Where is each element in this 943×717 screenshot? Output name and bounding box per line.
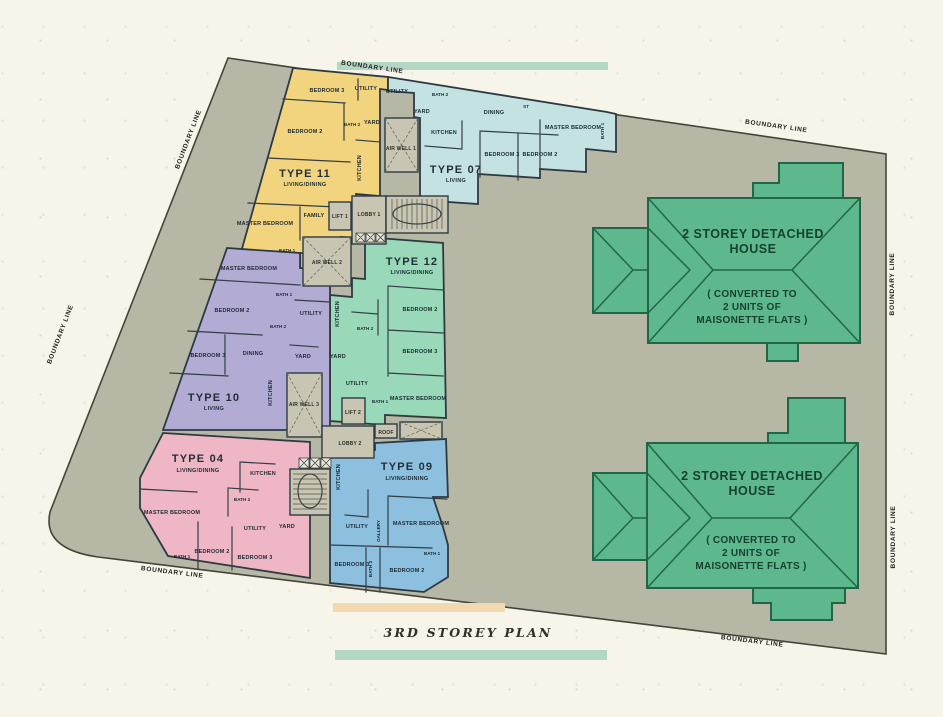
unit-sub-type07: LIVING (446, 178, 466, 184)
room-label: KITCHEN (250, 471, 276, 477)
unit-title-type09: TYPE 09 (381, 461, 433, 473)
room-label: MASTER BEDROOM (393, 521, 449, 527)
house1-name-line2: HOUSE (730, 242, 777, 256)
room-label: BEDROOM 2 (389, 568, 424, 574)
room-label: KITCHEN (357, 155, 363, 181)
lift-2-label: LIFT 2 (345, 410, 361, 416)
boundary-label: BOUNDARY LINE (889, 253, 896, 316)
unit-title-type12: TYPE 12 (386, 256, 438, 268)
room-label: MASTER BEDROOM (545, 125, 601, 131)
entry-mat-1 (356, 233, 385, 242)
room-label: BATH 1 (372, 399, 389, 404)
house1-note-line3: MAISONETTE FLATS ) (696, 315, 807, 326)
room-label: BEDROOM 2 (402, 307, 437, 313)
room-label: YARD (414, 109, 430, 115)
house2-note-line1: ( CONVERTED TO (706, 535, 796, 546)
room-label: KITCHEN (335, 301, 341, 327)
lift-1-label: LIFT 1 (332, 214, 348, 220)
room-label: BEDROOM 2 (287, 129, 322, 135)
house1-name-line1: 2 STOREY DETACHED (682, 227, 824, 241)
accent-bar-bottom (335, 650, 607, 660)
room-label: FAMILY (304, 213, 325, 219)
air-well-2-label: AIR WELL 2 (312, 260, 342, 266)
unit-sub-type11: LIVING/DINING (283, 182, 326, 188)
room-label: YARD (330, 354, 346, 360)
room-label: BATH 1 (424, 551, 441, 556)
room-label: DINING (484, 110, 504, 116)
house1-note-line1: ( CONVERTED TO (707, 289, 797, 300)
room-label: BATH 1 (279, 248, 296, 253)
house2-wing (593, 473, 647, 560)
room-label: UTILITY (355, 86, 377, 92)
roof-label: ROOF (378, 430, 393, 436)
room-label: BEDROOM 3 (334, 562, 369, 568)
room-label: BATH 2 (357, 326, 374, 331)
room-label: YARD (279, 524, 295, 530)
room-label: BEDROOM 3 (402, 349, 437, 355)
house2-note-line2: 2 UNITS OF (722, 548, 780, 559)
room-label: BEDROOM 2 (194, 549, 229, 555)
unit-sub-type12: LIVING/DINING (390, 270, 433, 276)
unit-title-type11: TYPE 11 (279, 168, 331, 180)
room-label: BEDROOM 2 (522, 152, 557, 158)
floor-plan: 2 STOREY DETACHED HOUSE ( CONVERTED TO 2… (0, 0, 943, 717)
unit-title-type10: TYPE 10 (188, 392, 240, 404)
room-label: UTILITY (300, 311, 322, 317)
room-label: DINING (243, 351, 263, 357)
lobby-1-label: LOBBY 1 (358, 212, 381, 218)
house1-note-line2: 2 UNITS OF (723, 302, 781, 313)
house2-note-line3: MAISONETTE FLATS ) (695, 561, 806, 572)
room-label: KITCHEN (336, 464, 342, 490)
room-label: MASTER BEDROOM (390, 396, 446, 402)
lobby-2-label: LOBBY 2 (339, 441, 362, 447)
room-label: BEDROOM 3 (484, 152, 519, 158)
room-label: BATH 2 (234, 497, 251, 502)
unit-sub-type10: LIVING (204, 406, 224, 412)
room-label: BATH 2 (368, 560, 373, 577)
room-label: BATH 1 (600, 122, 605, 139)
room-label: GALLERY (376, 520, 381, 542)
room-label: UTILITY (244, 526, 266, 532)
room-label: MASTER BEDROOM (221, 266, 277, 272)
room-label: BATH 1 (276, 292, 293, 297)
room-label: ST (523, 104, 529, 109)
room-label: YARD (364, 120, 380, 126)
boundary-label: BOUNDARY LINE (890, 506, 897, 569)
unit-sub-type09: LIVING/DINING (385, 476, 428, 482)
air-well-1-label: AIR WELL 1 (386, 146, 416, 152)
accent-bar-orange (333, 603, 505, 612)
entry-mat-2 (299, 458, 331, 468)
house2-name-line1: 2 STOREY DETACHED (681, 469, 823, 483)
room-label: UTILITY (386, 89, 408, 95)
house1-ext-bottom (767, 343, 798, 361)
room-label: BATH 2 (432, 92, 449, 97)
room-label: UTILITY (346, 381, 368, 387)
room-label: YARD (295, 354, 311, 360)
room-label: BATH 2 (270, 324, 287, 329)
room-label: KITCHEN (431, 130, 457, 136)
room-label: MASTER BEDROOM (144, 510, 200, 516)
air-well-3-label: AIR WELL 3 (289, 402, 319, 408)
plan-title: 3RD STOREY PLAN (384, 625, 553, 640)
house2-name-line2: HOUSE (729, 484, 776, 498)
unit-sub-type04: LIVING/DINING (176, 468, 219, 474)
room-label: BEDROOM 3 (237, 555, 272, 561)
unit-title-type04: TYPE 04 (172, 453, 224, 465)
room-label: BEDROOM 2 (214, 308, 249, 314)
room-label: BATH 2 (344, 122, 361, 127)
boundary-label: BOUNDARY LINE (46, 304, 75, 365)
room-label: BEDROOM 3 (309, 88, 344, 94)
room-label: BEDROOM 3 (190, 353, 225, 359)
room-label: UTILITY (346, 524, 368, 530)
boundary-label: BOUNDARY LINE (745, 119, 808, 135)
room-label: KITCHEN (268, 380, 274, 406)
unit-title-type07: TYPE 07 (430, 164, 482, 176)
room-label: BATH 1 (174, 554, 191, 559)
room-label: MASTER BEDROOM (237, 221, 293, 227)
